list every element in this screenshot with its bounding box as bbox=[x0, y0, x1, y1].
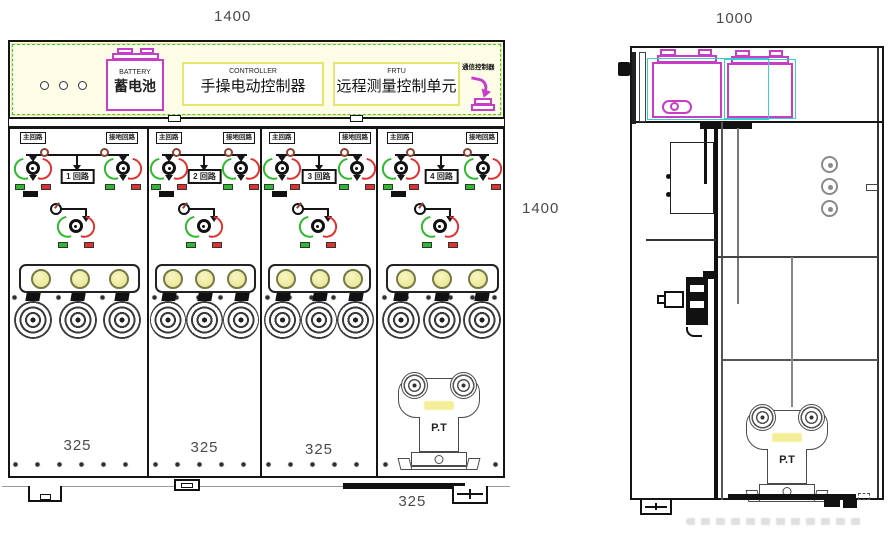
bolt-row bbox=[12, 461, 143, 468]
padlock-icon bbox=[340, 148, 349, 157]
indicator-lamp-panel bbox=[19, 264, 140, 293]
load-break-switch-symbol bbox=[151, 158, 187, 190]
load-break-switch-symbol bbox=[465, 158, 501, 190]
base-connector bbox=[174, 479, 200, 491]
watermark-smudge bbox=[686, 518, 864, 525]
cable-bushings bbox=[264, 301, 373, 339]
padlock-icon bbox=[286, 148, 295, 157]
main-circuit-label: 主回路 bbox=[269, 132, 295, 144]
pt-transformer-front: P.T bbox=[398, 374, 480, 472]
padlock-icon bbox=[463, 148, 472, 157]
front-height-dimension: 1400 bbox=[522, 200, 559, 217]
voltage-indicator-lamp bbox=[163, 269, 183, 289]
pt-label: P.T bbox=[431, 422, 447, 434]
load-break-switch-symbol bbox=[105, 158, 141, 190]
comm-controller-label: 通信控制器 bbox=[462, 61, 495, 71]
voltage-indicator-lamp bbox=[468, 269, 488, 289]
side-bushing-icon bbox=[821, 200, 838, 217]
cable-bushing-icon bbox=[264, 301, 300, 339]
battery-label-en: BATTERY bbox=[108, 69, 162, 76]
hinge-tab bbox=[168, 115, 181, 122]
voltage-indicator-lamp bbox=[227, 269, 247, 289]
cable-bushing-icon bbox=[103, 301, 141, 339]
padlock-icon bbox=[40, 148, 49, 157]
circuit-number-box: 2 回路 bbox=[187, 169, 222, 184]
bolt-row bbox=[152, 461, 256, 468]
handle-socket bbox=[159, 191, 174, 197]
panel-divider-bar bbox=[8, 118, 505, 127]
side-width-dimension: 1000 bbox=[716, 10, 753, 27]
cable-bushing-icon bbox=[150, 301, 186, 339]
cable-bushing-icon bbox=[186, 301, 222, 339]
load-break-switch-symbol bbox=[186, 216, 222, 248]
battery-handle-icon bbox=[670, 102, 679, 111]
load-break-switch-symbol bbox=[58, 216, 94, 248]
earth-circuit-label: 接地回路 bbox=[339, 132, 371, 144]
controller-label-en: CONTROLLER bbox=[184, 68, 322, 75]
frtu-label-cn: 远程测量控制单元 bbox=[335, 75, 458, 96]
load-break-switch-symbol bbox=[223, 158, 259, 190]
width-dimension: 325 bbox=[305, 441, 333, 458]
load-break-switch-symbol bbox=[383, 158, 419, 190]
pt-bushing-icon bbox=[749, 404, 776, 431]
shelf-line bbox=[718, 256, 878, 258]
lv-compartment: BATTERY 蓄电池 CONTROLLER 手操电动控制器 FRTU 远程测量… bbox=[8, 40, 505, 119]
side-bushing-icon bbox=[821, 156, 838, 173]
pt-bushing-icon bbox=[450, 372, 477, 399]
cable-bushing-icon bbox=[337, 301, 373, 339]
side-bushing-icon bbox=[821, 178, 838, 195]
inner-wall-line bbox=[877, 48, 879, 498]
voltage-indicator-lamp bbox=[31, 269, 51, 289]
voltage-indicator-lamp bbox=[396, 269, 416, 289]
battery-tray-outline bbox=[724, 59, 796, 119]
earth-circuit-label: 接地回路 bbox=[106, 132, 138, 144]
compartment-3: 主回路 接地回路 3 回路 bbox=[262, 127, 378, 478]
lv-compartment-floor bbox=[630, 121, 884, 123]
lower-switch-unit bbox=[414, 203, 474, 253]
operating-mechanism-side bbox=[650, 266, 720, 340]
voltage-indicator-lamp bbox=[109, 269, 129, 289]
base-channel-foot bbox=[640, 500, 672, 515]
pt-transformer-side: P.T bbox=[746, 406, 828, 504]
bolt-row bbox=[265, 461, 372, 468]
battery-box: BATTERY 蓄电池 bbox=[106, 59, 164, 111]
voltage-indicator-lamp bbox=[70, 269, 90, 289]
width-dimension: 325 bbox=[398, 493, 426, 510]
load-break-switch-symbol bbox=[339, 158, 375, 190]
controller-label-cn: 手操电动控制器 bbox=[184, 75, 322, 96]
circuit-number-box: 4 回路 bbox=[424, 169, 459, 184]
load-break-switch-symbol bbox=[264, 158, 300, 190]
base-rail bbox=[343, 483, 465, 489]
cable-bushing-icon bbox=[14, 301, 52, 339]
battery-label-cn: 蓄电池 bbox=[108, 76, 162, 96]
switchgear-drawing: 1400 1400 BATTERY 蓄电池 CONTROLLER 手操电动控制器 bbox=[0, 0, 892, 548]
indicator-hole-icon bbox=[78, 81, 87, 90]
pt-label: P.T bbox=[779, 454, 795, 466]
door-frame bbox=[670, 142, 714, 214]
cable-bushing-icon bbox=[382, 301, 420, 339]
comm-device-icon bbox=[468, 78, 500, 114]
handle-socket bbox=[23, 191, 38, 197]
cable-bushing-icon bbox=[59, 301, 97, 339]
indicator-hole-icon bbox=[59, 81, 68, 90]
circuit-number-box: 3 回路 bbox=[302, 169, 337, 184]
load-break-switch-symbol bbox=[422, 216, 458, 248]
cable-bushing-icon bbox=[423, 301, 461, 339]
pt-bushing-icon bbox=[401, 372, 428, 399]
hinge-tab bbox=[350, 115, 363, 122]
lower-switch-unit bbox=[178, 203, 238, 253]
controller-box: CONTROLLER 手操电动控制器 bbox=[182, 62, 324, 106]
voltage-indicator-lamp bbox=[343, 269, 363, 289]
circuit-number-box: 1 回路 bbox=[60, 169, 95, 184]
cable-bushing-icon bbox=[223, 301, 259, 339]
compartment-2: 主回路 接地回路 2 回路 bbox=[149, 127, 262, 478]
base-channel-foot bbox=[452, 486, 488, 504]
cable-bushing-icon bbox=[463, 301, 501, 339]
lower-switch-unit bbox=[50, 203, 110, 253]
watermark-smudge bbox=[424, 401, 454, 410]
main-circuit-label: 主回路 bbox=[20, 132, 46, 144]
pt-bushing-icon bbox=[798, 404, 825, 431]
shelf-line bbox=[723, 359, 878, 361]
compartment-1: 主回路 接地回路 1 回路 bbox=[8, 127, 149, 478]
indicator-hole-icon bbox=[40, 81, 49, 90]
load-break-switch-symbol bbox=[300, 216, 336, 248]
indicator-lamp-panel bbox=[155, 264, 256, 293]
padlock-icon bbox=[100, 148, 109, 157]
watermark-smudge bbox=[772, 433, 802, 442]
cable-bushings bbox=[14, 301, 142, 339]
frtu-box: FRTU 远程测量控制单元 bbox=[333, 62, 460, 106]
base-channel-foot bbox=[28, 486, 62, 502]
voltage-indicator-lamp bbox=[432, 269, 452, 289]
indicator-lamp-panel bbox=[268, 264, 372, 293]
voltage-indicator-lamp bbox=[276, 269, 296, 289]
cable-bushings bbox=[150, 301, 259, 339]
frtu-label-en: FRTU bbox=[335, 68, 458, 75]
main-circuit-label: 主回路 bbox=[387, 132, 413, 144]
main-circuit-label: 主回路 bbox=[156, 132, 182, 144]
padlock-icon bbox=[406, 148, 415, 157]
earth-circuit-label: 接地回路 bbox=[466, 132, 498, 144]
load-break-switch-symbol bbox=[15, 158, 51, 190]
width-dimension: 325 bbox=[63, 437, 91, 454]
width-dimension: 325 bbox=[190, 439, 218, 456]
voltage-indicator-lamp bbox=[195, 269, 215, 289]
handle-socket bbox=[272, 191, 287, 197]
wall-bracket bbox=[866, 184, 878, 191]
lower-switch-unit bbox=[292, 203, 352, 253]
voltage-indicator-lamp bbox=[310, 269, 330, 289]
earth-circuit-label: 接地回路 bbox=[223, 132, 255, 144]
indicator-lamp-panel bbox=[386, 264, 499, 293]
cable-bushing-icon bbox=[301, 301, 337, 339]
handle-socket bbox=[391, 191, 406, 197]
bolt-hole-icon bbox=[435, 455, 444, 464]
cable-bushings bbox=[382, 301, 501, 339]
hinge-knob bbox=[618, 62, 630, 76]
front-width-dimension: 1400 bbox=[214, 8, 251, 25]
